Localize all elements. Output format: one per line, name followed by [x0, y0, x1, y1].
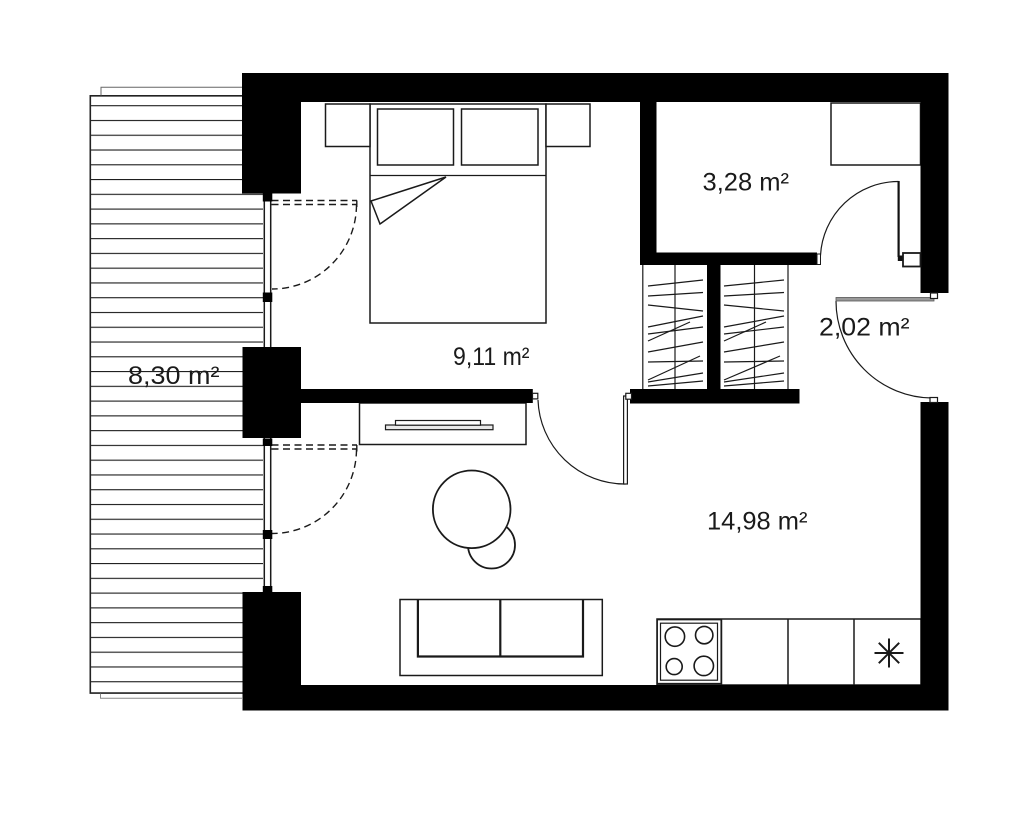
svg-text:9,11 m²: 9,11 m² — [453, 343, 530, 371]
svg-text:8,30 m²: 8,30 m² — [128, 362, 220, 390]
svg-text:2,02 m²: 2,02 m² — [819, 314, 910, 342]
svg-text:14,98 m²: 14,98 m² — [707, 508, 808, 536]
svg-text:3,28 m²: 3,28 m² — [703, 169, 790, 197]
